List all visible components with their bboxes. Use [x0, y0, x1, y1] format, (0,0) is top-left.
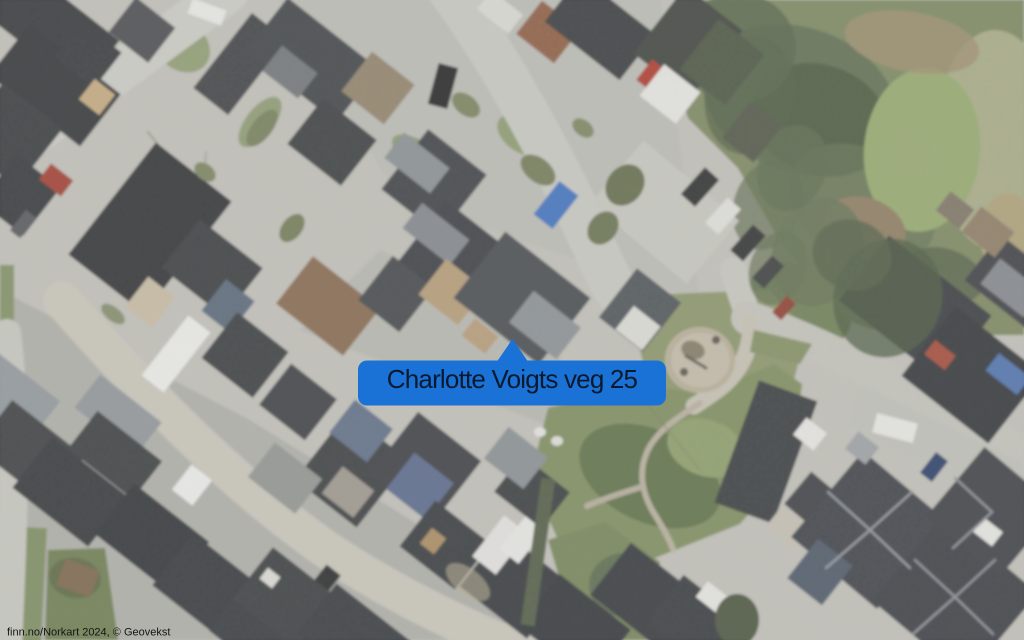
svg-text:finn.no/Norkart 2024, © Geovek: finn.no/Norkart 2024, © Geovekst: [7, 627, 170, 639]
svg-text:Charlotte Voigts veg 25: Charlotte Voigts veg 25: [387, 364, 638, 394]
